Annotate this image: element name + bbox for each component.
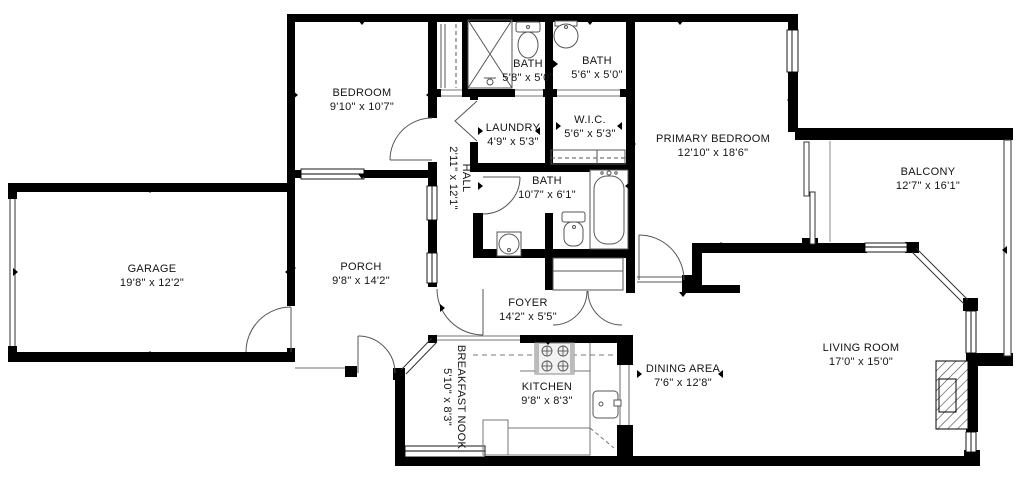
door-primary-bedroom — [637, 235, 684, 282]
svg-text:HALL: HALL — [460, 164, 472, 193]
svg-text:17'0" x 15'0": 17'0" x 15'0" — [829, 356, 893, 368]
fireplace — [936, 361, 968, 429]
window-breakfast-nook — [405, 446, 485, 457]
svg-text:2'11" x 12'1": 2'11" x 12'1" — [447, 146, 459, 209]
room-label-bath-main: BATH 10'7" x 6'1" — [518, 175, 576, 201]
door-laundry-bifold — [455, 101, 477, 141]
door-garage — [246, 307, 291, 352]
room-label-kitchen: KITCHEN 9'8" x 8'3" — [521, 381, 572, 407]
window-porch-lower — [427, 253, 437, 283]
hall-closet — [441, 24, 456, 88]
room-label-wic: W.I.C. 5'6" x 5'3" — [564, 114, 615, 140]
svg-text:10'7" x 6'1": 10'7" x 6'1" — [518, 189, 576, 201]
svg-text:BEDROOM: BEDROOM — [333, 87, 392, 99]
bathtub — [590, 170, 628, 249]
wic-shelf — [551, 150, 625, 164]
svg-text:BATH: BATH — [513, 58, 543, 70]
room-label-foyer: FOYER 14'2" x 5'5" — [499, 297, 557, 323]
svg-text:BREAKFAST NOOK: BREAKFAST NOOK — [455, 345, 467, 450]
svg-text:19'8" x 12'2": 19'8" x 12'2" — [120, 277, 184, 289]
sliding-door — [804, 142, 815, 244]
svg-text:4'9" x 5'3": 4'9" x 5'3" — [487, 136, 538, 148]
room-label-hall: HALL 2'11" x 12'1" — [447, 146, 472, 209]
room-label-breakfast-nook: BREAKFAST NOOK 5'10" x 8'3" — [441, 345, 467, 450]
svg-text:FOYER: FOYER — [508, 297, 547, 309]
svg-text:14'2" x 5'5": 14'2" x 5'5" — [499, 311, 557, 323]
svg-text:W.I.C.: W.I.C. — [574, 114, 606, 126]
svg-text:9'8" x 8'3": 9'8" x 8'3" — [521, 395, 572, 407]
svg-text:BATH: BATH — [582, 55, 612, 67]
room-label-primary-bedroom: PRIMARY BEDROOM 12'10" x 18'6" — [656, 133, 770, 159]
window-bedroom-porch — [301, 169, 364, 179]
sink-bath-main — [497, 232, 521, 256]
toilet-bath1 — [516, 22, 540, 58]
svg-text:LIVING ROOM: LIVING ROOM — [823, 342, 900, 354]
window-below-fireplace — [966, 432, 976, 452]
svg-text:9'8" x 14'2": 9'8" x 14'2" — [332, 275, 390, 287]
svg-text:PORCH: PORCH — [340, 261, 381, 273]
svg-text:9'10" x 10'7": 9'10" x 10'7" — [330, 101, 394, 113]
toilet-bath-main — [562, 212, 585, 246]
kitchen-sink — [593, 391, 621, 418]
sink-bath2 — [554, 21, 578, 48]
svg-text:5'10" x 8'3": 5'10" x 8'3" — [441, 368, 453, 426]
room-label-bath-top-right: BATH 5'6" x 5'0" — [571, 55, 622, 81]
svg-text:12'7" x 16'1": 12'7" x 16'1" — [896, 180, 960, 192]
stove — [535, 343, 574, 374]
floor-plan-page: BEDROOM 9'10" x 10'7" BATH 5'8" x 5'0" B… — [0, 0, 1024, 485]
door-foyer-closet-double — [553, 291, 622, 325]
room-label-bedroom: BEDROOM 9'10" x 10'7" — [330, 87, 394, 113]
svg-text:GARAGE: GARAGE — [128, 263, 177, 275]
door-front-entry — [437, 289, 483, 335]
door-bath-main — [483, 177, 520, 214]
svg-text:DINING AREA: DINING AREA — [646, 363, 721, 375]
svg-text:BATH: BATH — [532, 175, 562, 187]
svg-text:PRIMARY BEDROOM: PRIMARY BEDROOM — [656, 133, 770, 145]
window-living-east — [966, 311, 976, 353]
room-label-garage: GARAGE 19'8" x 12'2" — [120, 263, 184, 289]
svg-text:12'10" x 18'6": 12'10" x 18'6" — [678, 147, 749, 159]
room-label-living-room: LIVING ROOM 17'0" x 15'0" — [823, 342, 900, 368]
svg-text:LAUNDRY: LAUNDRY — [486, 122, 541, 134]
room-label-laundry: LAUNDRY 4'9" x 5'3" — [486, 122, 541, 148]
floor-plan: BEDROOM 9'10" x 10'7" BATH 5'8" x 5'0" B… — [0, 0, 1024, 485]
svg-text:7'6" x 12'8": 7'6" x 12'8" — [654, 377, 712, 389]
window-nook-diagonal — [401, 338, 437, 374]
room-label-dining-area: DINING AREA 7'6" x 12'8" — [646, 363, 721, 389]
svg-text:5'6" x 5'0": 5'6" x 5'0" — [571, 69, 622, 81]
window-primary-east — [787, 30, 798, 72]
room-label-balcony: BALCONY 12'7" x 16'1" — [896, 166, 960, 192]
svg-text:KITCHEN: KITCHEN — [522, 381, 572, 393]
door-bedroom — [390, 118, 432, 160]
window-living-diagonal — [912, 248, 968, 304]
svg-text:5'6" x 5'3": 5'6" x 5'3" — [564, 128, 615, 140]
svg-text:BALCONY: BALCONY — [901, 166, 956, 178]
svg-text:5'8" x 5'0": 5'8" x 5'0" — [502, 72, 553, 84]
window-living-top — [865, 243, 907, 252]
window-porch-upper — [427, 186, 437, 220]
room-label-porch: PORCH 9'8" x 14'2" — [332, 261, 390, 287]
door-porch — [358, 336, 395, 373]
foyer-closet — [553, 258, 623, 290]
